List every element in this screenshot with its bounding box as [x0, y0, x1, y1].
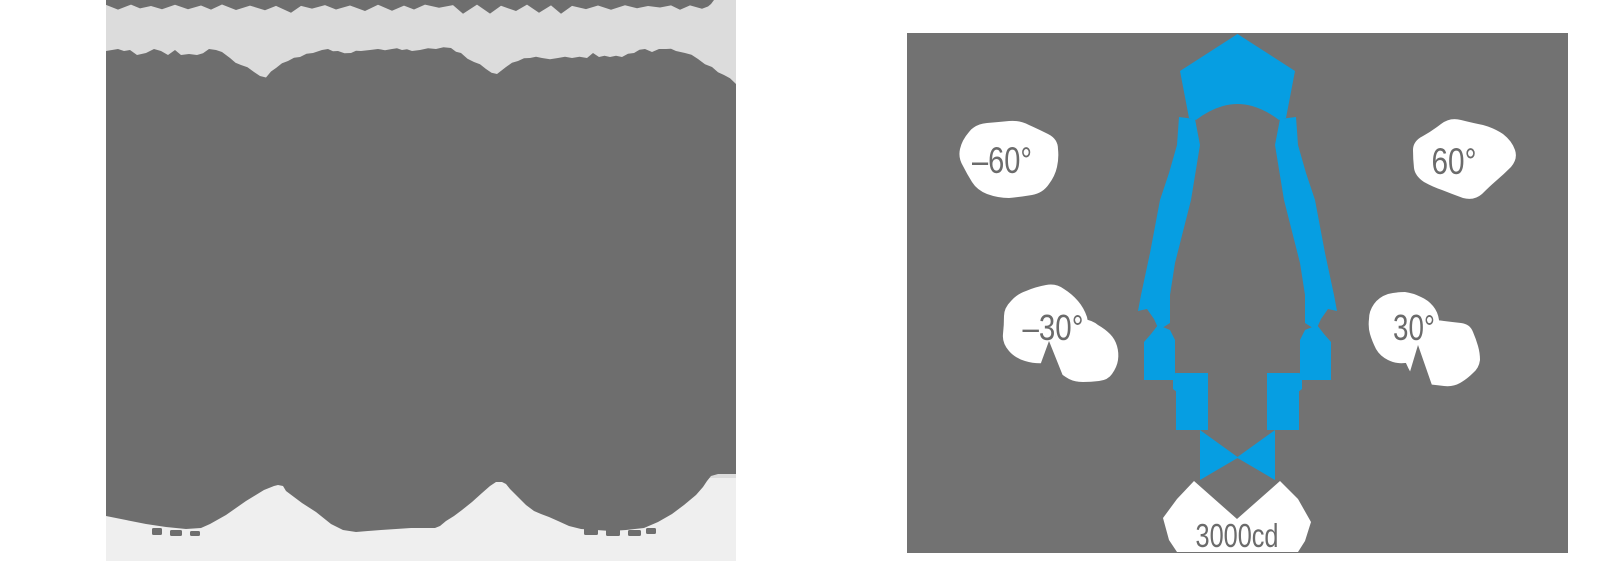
svg-text:60°: 60°: [1432, 141, 1477, 182]
svg-text:30°: 30°: [1393, 307, 1435, 348]
svg-text:–60°: –60°: [972, 140, 1032, 181]
svg-text:3000cd: 3000cd: [1196, 517, 1279, 553]
svg-text:–30°: –30°: [1023, 307, 1084, 348]
